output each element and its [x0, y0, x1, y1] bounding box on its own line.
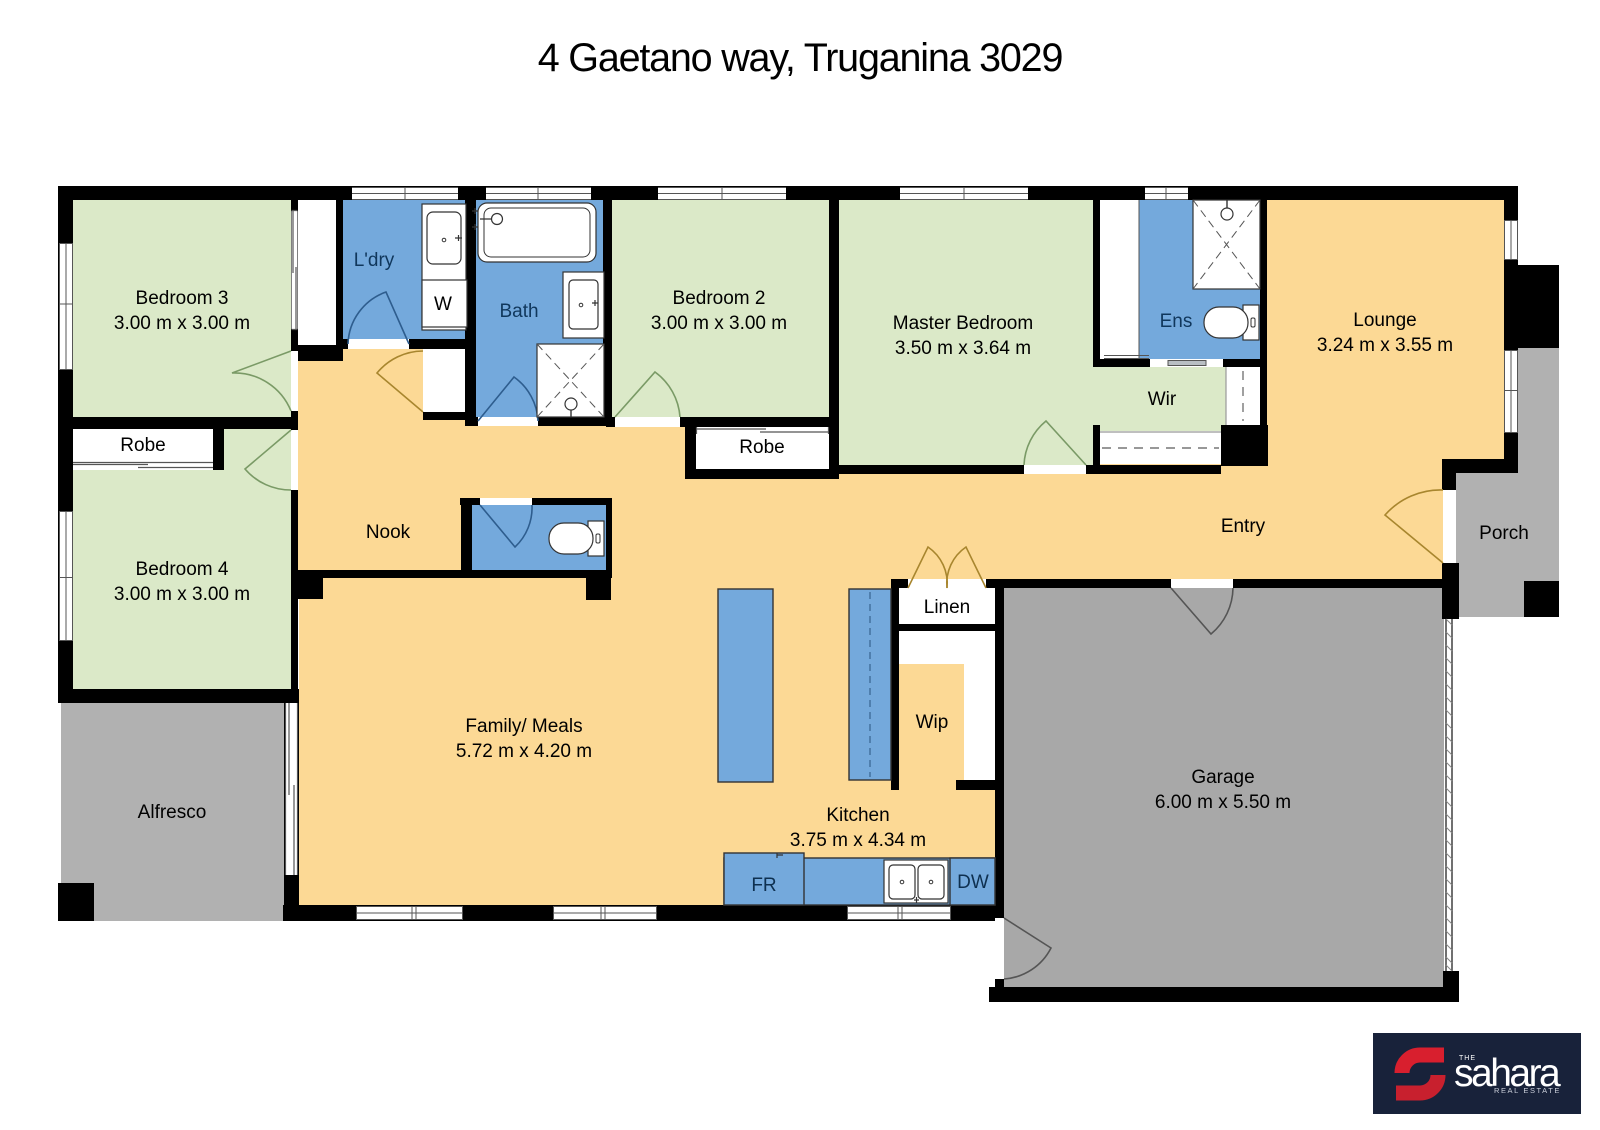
- svg-text:3.75 m x 4.34 m: 3.75 m x 4.34 m: [790, 830, 926, 851]
- svg-text:Bath: Bath: [499, 301, 538, 322]
- svg-text:3.00 m x 3.00 m: 3.00 m x 3.00 m: [114, 313, 250, 334]
- svg-text:Master Bedroom: Master Bedroom: [893, 313, 1033, 334]
- svg-text:3.24 m x 3.55 m: 3.24 m x 3.55 m: [1317, 335, 1453, 356]
- svg-text:Alfresco: Alfresco: [138, 802, 207, 823]
- svg-text:Linen: Linen: [924, 597, 971, 618]
- svg-text:3.00 m x 3.00 m: 3.00 m x 3.00 m: [114, 584, 250, 605]
- svg-text:L'dry: L'dry: [354, 250, 395, 271]
- svg-text:Ens: Ens: [1160, 311, 1193, 332]
- svg-text:5.72 m x 4.20 m: 5.72 m x 4.20 m: [456, 741, 592, 762]
- svg-text:W: W: [434, 294, 452, 315]
- svg-text:Bedroom 3: Bedroom 3: [136, 288, 229, 309]
- svg-text:Bedroom 4: Bedroom 4: [136, 559, 229, 580]
- svg-text:Lounge: Lounge: [1353, 310, 1416, 331]
- svg-text:Wip: Wip: [916, 712, 949, 733]
- svg-text:Entry: Entry: [1221, 516, 1266, 537]
- svg-text:Garage: Garage: [1191, 767, 1254, 788]
- svg-text:Wir: Wir: [1148, 389, 1177, 410]
- svg-text:FR: FR: [751, 875, 776, 896]
- svg-text:REAL ESTATE: REAL ESTATE: [1494, 1086, 1561, 1095]
- svg-text:Family/ Meals: Family/ Meals: [465, 716, 582, 737]
- svg-text:3.00 m x 3.00 m: 3.00 m x 3.00 m: [651, 313, 787, 334]
- svg-text:Kitchen: Kitchen: [826, 805, 889, 826]
- svg-text:DW: DW: [957, 872, 989, 893]
- svg-text:Nook: Nook: [366, 522, 411, 543]
- svg-text:Porch: Porch: [1479, 523, 1529, 544]
- svg-text:Robe: Robe: [739, 437, 784, 458]
- svg-text:6.00 m x 5.50 m: 6.00 m x 5.50 m: [1155, 792, 1291, 813]
- svg-text:Bedroom 2: Bedroom 2: [673, 288, 766, 309]
- svg-text:4 Gaetano way, Truganina 3029: 4 Gaetano way, Truganina 3029: [538, 36, 1063, 80]
- svg-text:Robe: Robe: [120, 435, 165, 456]
- svg-text:3.50 m x 3.64 m: 3.50 m x 3.64 m: [895, 338, 1031, 359]
